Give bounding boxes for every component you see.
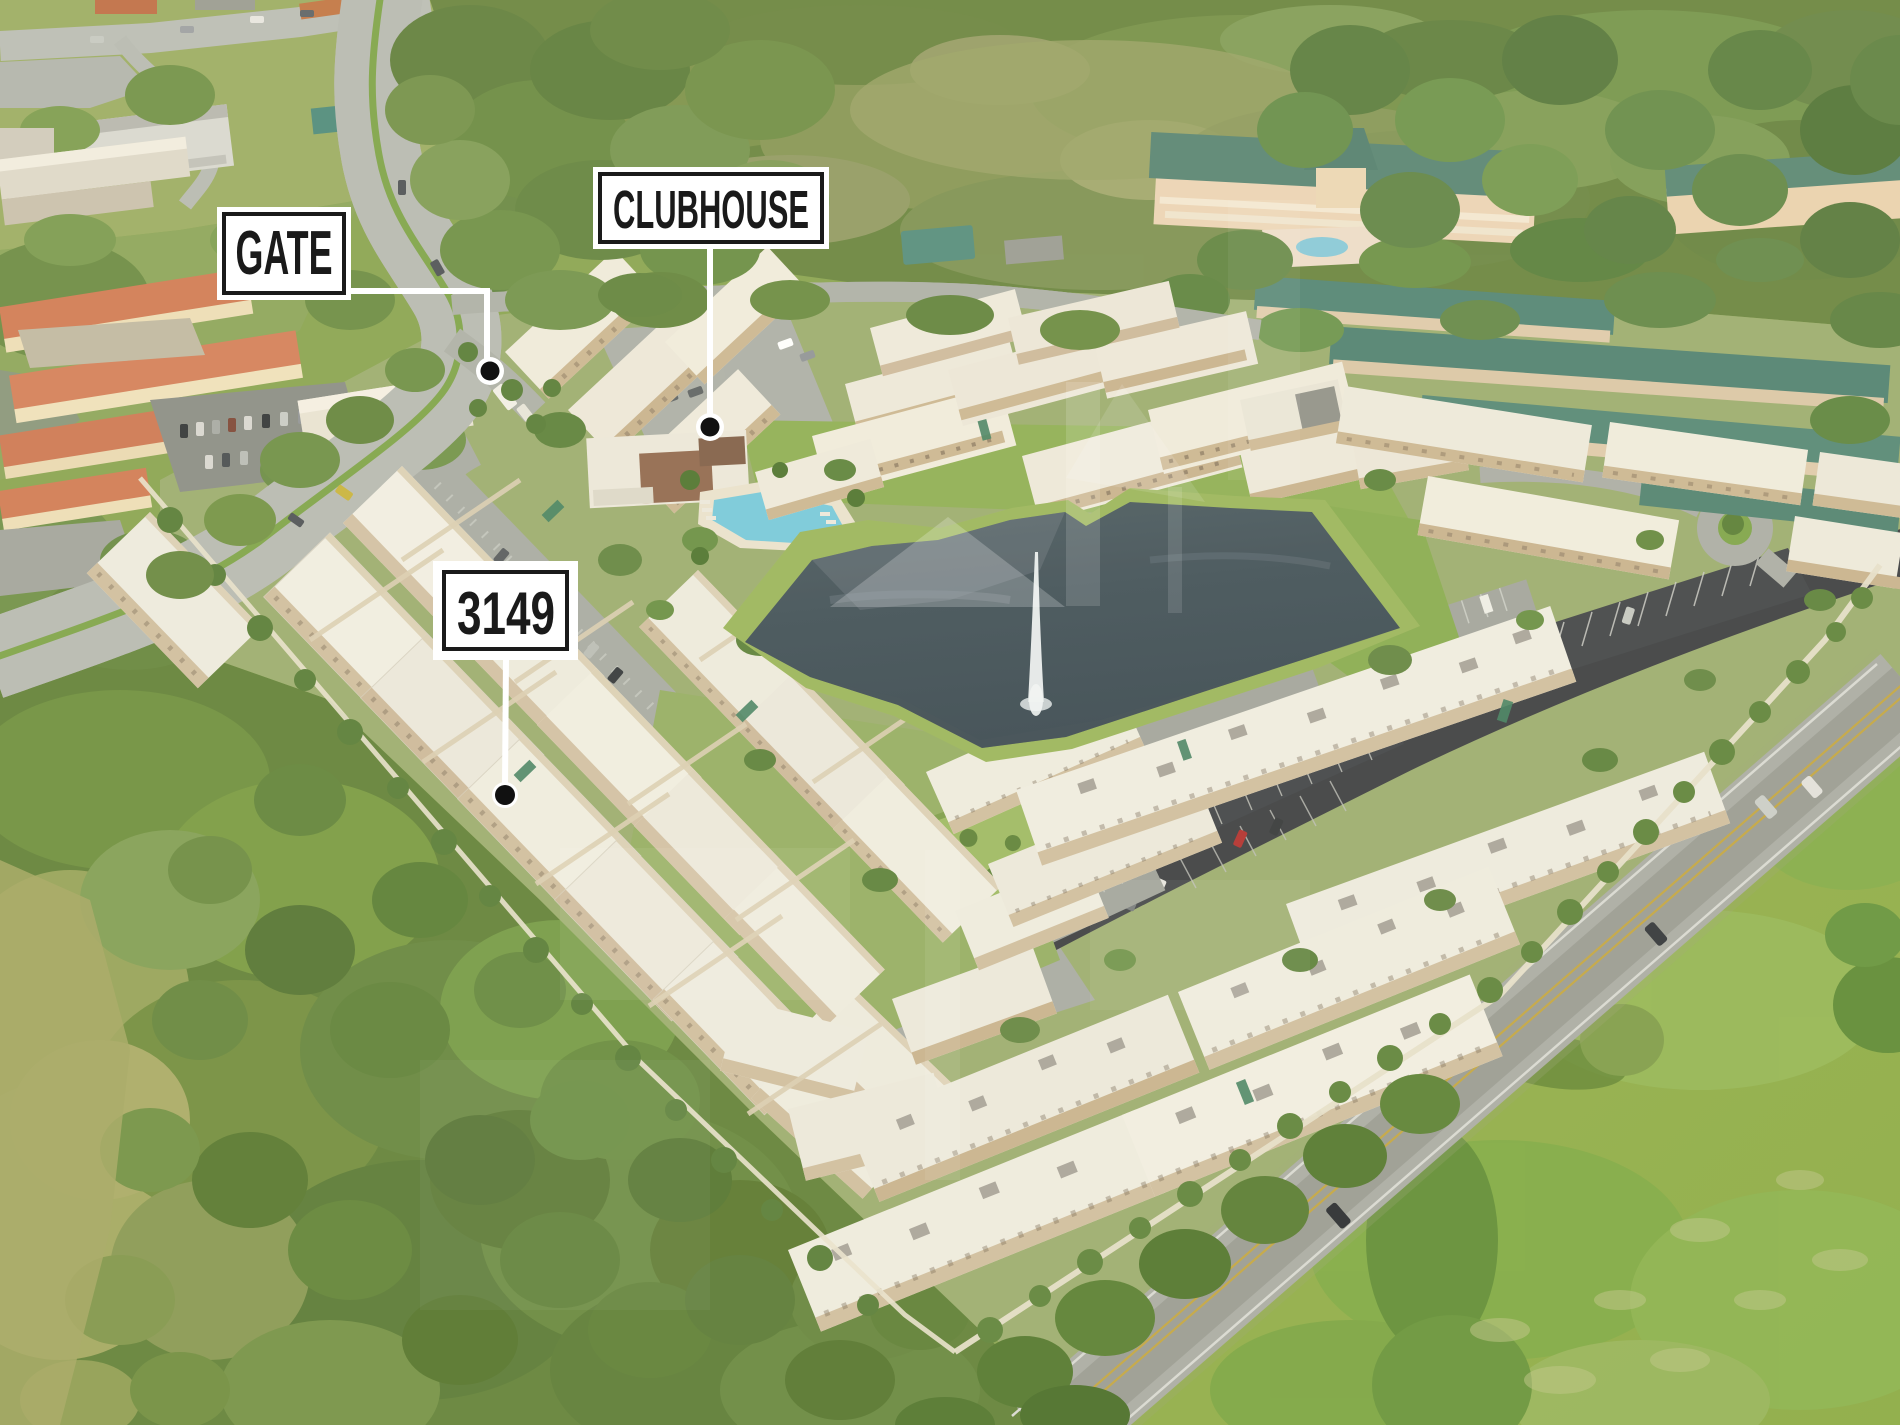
svg-text:GATE: GATE xyxy=(236,219,333,288)
svg-text:3149: 3149 xyxy=(457,580,555,647)
svg-text:CLUBHOUSE: CLUBHOUSE xyxy=(613,180,809,240)
